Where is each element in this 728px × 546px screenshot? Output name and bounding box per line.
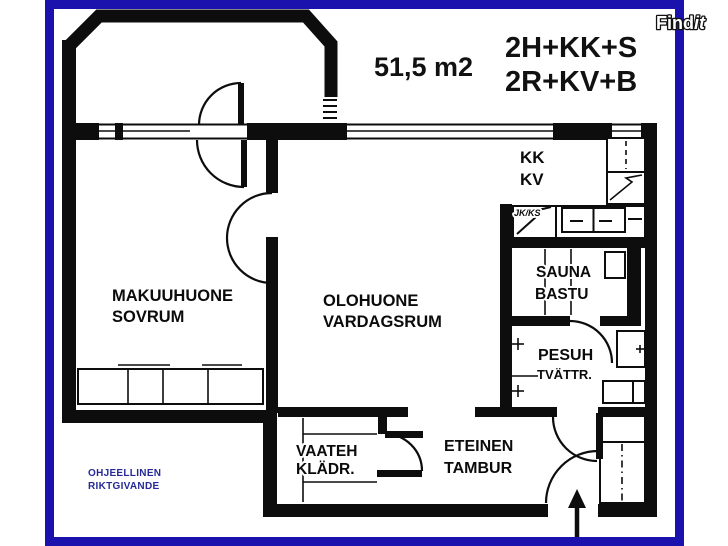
wall-segment <box>598 504 657 517</box>
footnote-fi: OHJEELLINEN <box>88 468 161 479</box>
wall-segment <box>475 407 557 417</box>
bedroom-wardrobe <box>78 369 263 404</box>
wall-segment <box>627 248 641 318</box>
wall-segment <box>62 123 99 140</box>
room-label-sauna-fi: SAUNA <box>536 264 591 281</box>
room-label-closet-sv: KLÄDR. <box>296 461 355 478</box>
fridge-freezer-label: JK/KS <box>514 208 541 218</box>
wall-segment <box>645 124 657 517</box>
findit-logo: Findit <box>656 13 706 33</box>
wall-segment <box>263 504 548 517</box>
balcony-door-leaf-inner <box>241 140 247 187</box>
wall-segment <box>266 237 278 413</box>
wall-segment <box>278 407 408 417</box>
room-label-kitchen-fi: KK <box>520 148 545 167</box>
apartment-type-sv: 2R+KV+B <box>505 66 637 98</box>
wall-segment <box>266 137 278 193</box>
floor-plan-canvas: 51,5 m2 2H+KK+S 2R+KV+B MAKUUHUONE SOVRU… <box>0 0 728 546</box>
wall-segment <box>247 123 347 140</box>
wall-segment <box>553 123 612 140</box>
wall-segment <box>600 316 641 326</box>
wall-segment <box>62 410 277 423</box>
footnote-sv: RIKTGIVANDE <box>88 481 159 492</box>
room-label-hall-sv: TAMBUR <box>444 460 513 477</box>
room-label-washroom-fi: PESUH <box>538 347 593 364</box>
wall-segment <box>263 410 277 517</box>
balcony-door-leaf <box>238 83 244 125</box>
room-label-bedroom-sv: SOVRUM <box>112 308 184 326</box>
room-label-closet-fi: VAATEH <box>296 443 357 460</box>
wall-segment <box>62 40 76 423</box>
closet-door-leaf <box>377 470 422 477</box>
room-label-hall-fi: ETEINEN <box>444 438 513 455</box>
room-label-kitchen-sv: KV <box>520 170 544 189</box>
room-label-bedroom-fi: MAKUUHUONE <box>112 287 233 305</box>
room-label-washroom-sv: TVÄTTR. <box>537 367 592 382</box>
floor-plan-image: 51,5 m2 2H+KK+S 2R+KV+B MAKUUHUONE SOVRU… <box>0 0 728 546</box>
room-label-sauna-sv: BASTU <box>535 286 588 303</box>
apartment-type-fi: 2H+KK+S <box>505 32 637 64</box>
area-label: 51,5 m2 <box>374 52 473 82</box>
wall-segment <box>500 316 570 326</box>
room-label-living-sv: VARDAGSRUM <box>323 313 442 331</box>
room-label-living-fi: OLOHUONE <box>323 292 418 310</box>
wall-segment <box>500 204 512 412</box>
